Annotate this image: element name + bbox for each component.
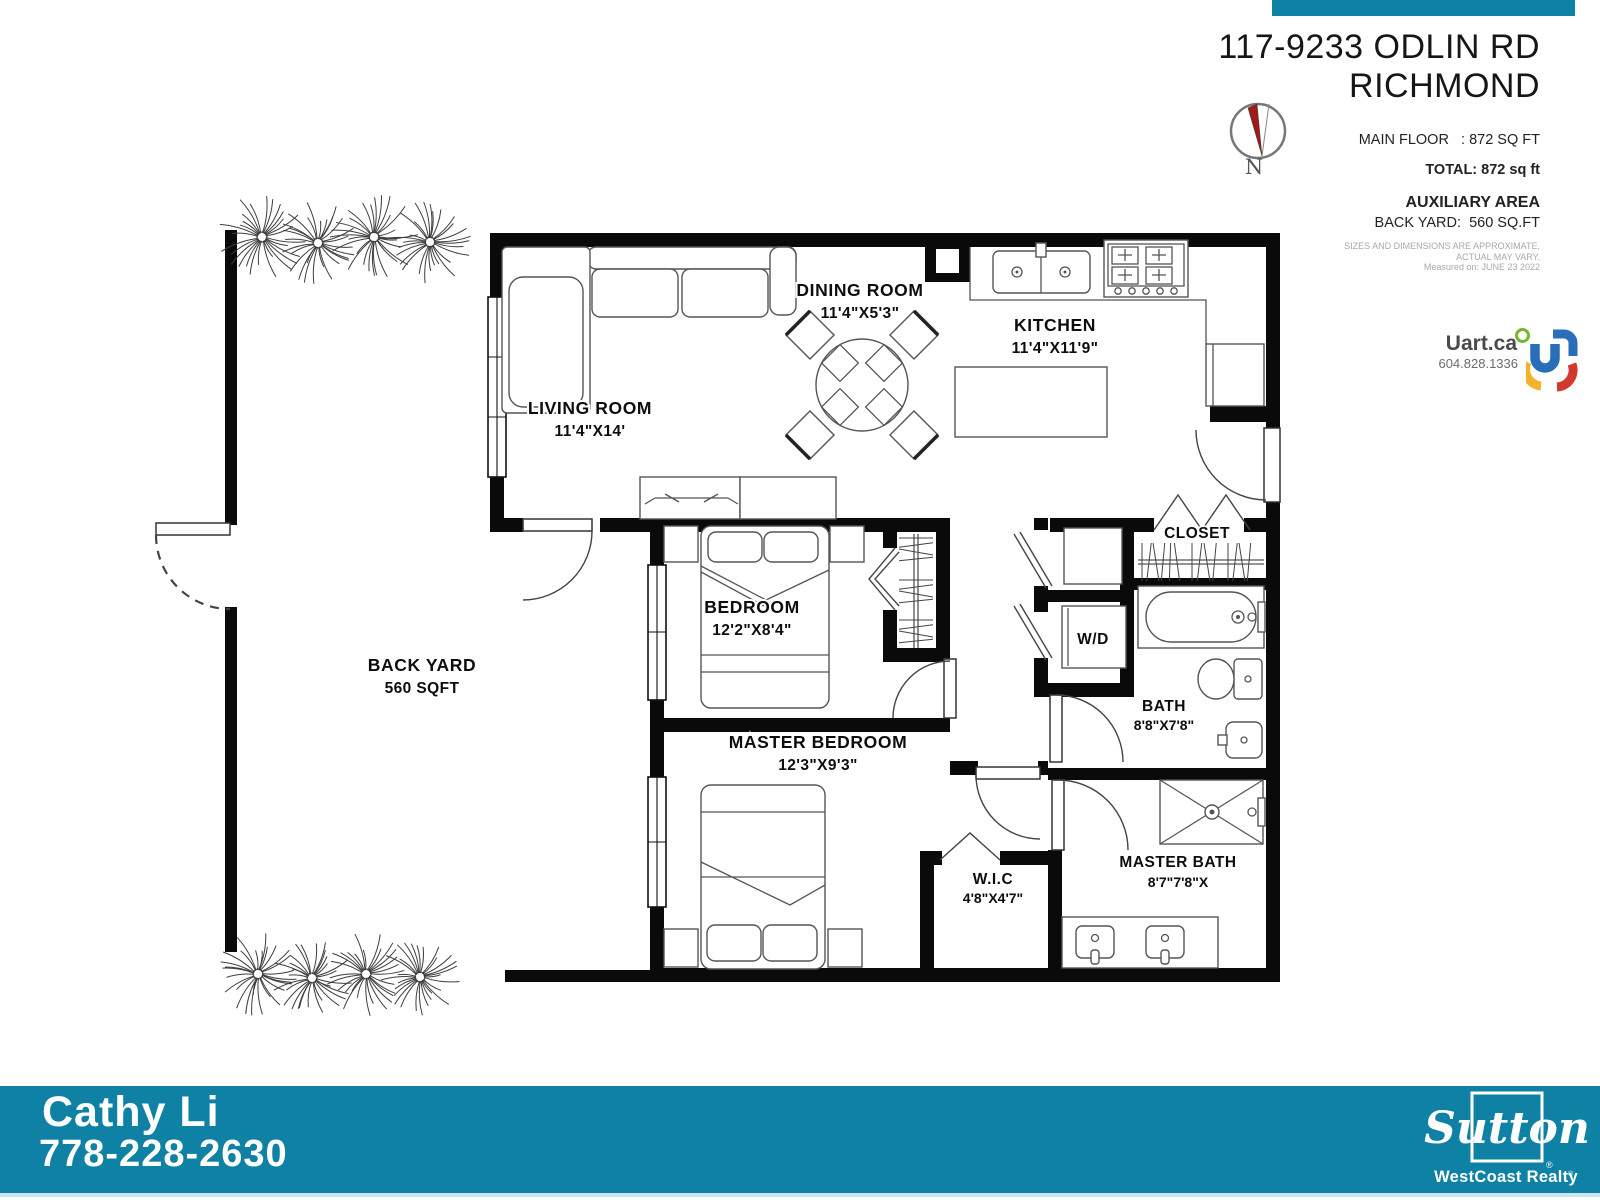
storage-door [1014, 532, 1052, 588]
master-bedroom-label: MASTER BEDROOM [729, 732, 908, 752]
wic-label: W.I.C [973, 871, 1013, 888]
bath-label: BATH [1142, 698, 1186, 715]
yard-gate [156, 523, 230, 535]
master-bed [664, 785, 862, 969]
entry-closet [1138, 543, 1264, 581]
living-room-label: LIVING ROOM [528, 398, 652, 418]
shrub-icon [274, 942, 352, 1012]
closet-label: CLOSET [1164, 525, 1230, 542]
brokerage-subtitle: WestCoast Realty [1434, 1168, 1578, 1186]
toilet-icon [1198, 659, 1262, 699]
back-yard-dims: 560 SQFT [385, 680, 460, 697]
bath-door [1050, 695, 1062, 762]
bedroom-bed [664, 526, 864, 708]
sofa-sectional [502, 247, 796, 413]
master-bath-dims: 8'7"7'8"X [1148, 874, 1209, 890]
living-room-dims: 11'4"X14' [555, 423, 626, 440]
bedroom-label: BEDROOM [704, 597, 800, 617]
brokerage-name: Sutton [1424, 1103, 1590, 1154]
shower-icon [1160, 780, 1265, 844]
kitchen-label: KITCHEN [1014, 315, 1096, 335]
wic-bifold [940, 833, 1000, 860]
agent-name: Cathy Li [42, 1088, 220, 1137]
back-yard-label: BACK YARD [368, 655, 476, 675]
washer-dryer-label: W/D [1077, 631, 1109, 648]
kitchen-island [955, 367, 1107, 437]
bedroom-closet [899, 534, 933, 648]
shrub-icon [390, 202, 471, 283]
tv-console [640, 477, 836, 519]
footer-accent-strip [0, 1193, 1600, 1197]
master-bedroom-door [976, 767, 1040, 779]
floor-plan: LIVING ROOM 11'4"X14' DINING ROOM 11'4"X… [0, 0, 1600, 1080]
subtitle-reg-mark: ® [1568, 1170, 1574, 1178]
laundry-door [1014, 604, 1052, 660]
master-bath-door [1052, 780, 1064, 850]
bath-sink-icon [1218, 722, 1262, 758]
shrub-icon [283, 202, 355, 283]
stove-icon [1104, 240, 1188, 297]
patio-door [523, 519, 592, 531]
bedroom-closet-bifold [869, 548, 895, 610]
kitchen-dims: 11'4"X11'9" [1012, 340, 1099, 357]
bedroom-dims: 12'2"X8'4" [712, 622, 792, 639]
agent-phone: 778-228-2630 [39, 1133, 288, 1176]
fridge-icon [1206, 344, 1264, 406]
dining-room-dims: 11'4"X5'3" [821, 305, 900, 322]
dining-table [786, 311, 938, 459]
yard-gate-swing [156, 535, 230, 609]
floorplan-page: 117-9233 ODLIN RD RICHMOND MAIN FLOOR : … [0, 0, 1600, 1200]
entry-door [1264, 428, 1280, 502]
storage-shelf [1064, 528, 1122, 584]
wic-dims: 4'8"X4'7" [963, 890, 1023, 906]
sutton-logo: Sutton ® WestCoast Realty ® [1420, 1088, 1590, 1190]
shrub-icon [327, 934, 404, 1016]
master-bath-label: MASTER BATH [1119, 854, 1236, 871]
bath-dims: 8'8"X7'8" [1134, 717, 1194, 733]
shrub-icon [330, 195, 418, 277]
dining-room-label: DINING ROOM [796, 280, 923, 300]
bathtub-icon [1138, 586, 1265, 648]
master-bedroom-dims: 12'3"X9'3" [778, 757, 858, 774]
double-vanity [1062, 917, 1218, 968]
bedroom-door [944, 659, 956, 718]
